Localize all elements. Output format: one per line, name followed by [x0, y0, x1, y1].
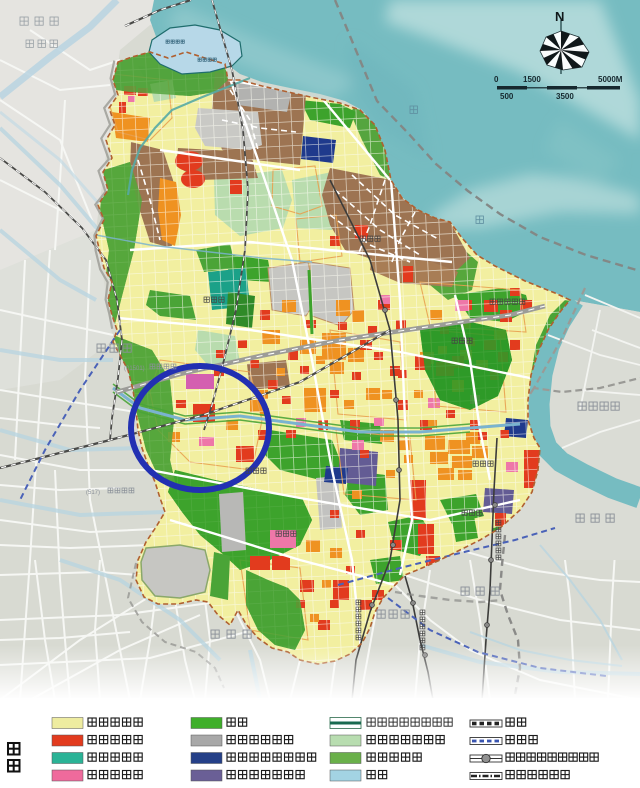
- svg-text:500: 500: [500, 92, 514, 101]
- svg-text:5000M: 5000M: [598, 75, 623, 84]
- svg-text:(517): (517): [86, 490, 100, 496]
- svg-text:N: N: [555, 9, 564, 24]
- svg-text:1500: 1500: [523, 75, 541, 84]
- svg-text:3500: 3500: [556, 92, 574, 101]
- svg-text:0: 0: [494, 75, 499, 84]
- svg-text:(01501): (01501): [124, 366, 145, 372]
